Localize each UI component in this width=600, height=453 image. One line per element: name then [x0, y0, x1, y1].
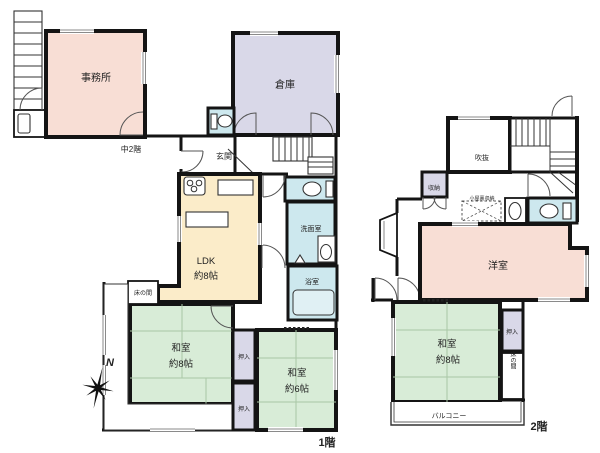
- balcony-label: バルコニー: [432, 412, 467, 420]
- entrance-area: 玄関: [181, 149, 253, 173]
- toilet-1f-tank: [211, 114, 217, 129]
- washroom: 洗面室: [287, 202, 335, 264]
- bathroom: 浴室: [288, 266, 337, 320]
- closet-1f-upper-label: 押入: [238, 353, 250, 361]
- toilet-hall-bowl: [303, 182, 321, 196]
- kitchen-counter: [218, 180, 253, 195]
- stairs-1f-landing: [308, 157, 333, 174]
- toilet-2f: [528, 198, 577, 223]
- toilet-1f-bowl: [218, 115, 232, 127]
- shoe-cabinet: [18, 114, 30, 133]
- balcony: バルコニー: [391, 402, 524, 425]
- bathroom-label: 浴室: [305, 277, 319, 286]
- stairs-2f: [510, 118, 577, 193]
- toilet-1f-hall: [263, 175, 335, 201]
- office-label: 事務所: [81, 71, 111, 84]
- warehouse-label: 倉庫: [275, 78, 295, 91]
- toilet-hall-tank: [326, 181, 333, 197]
- attic-storage-label: 小屋裏収納: [469, 195, 494, 202]
- tatami8-2f-size: 約8帖: [436, 354, 461, 366]
- tatami8-2f-name: 和室: [437, 338, 456, 350]
- stairs-1f: [273, 137, 333, 174]
- stairs-top-door-arc: [552, 96, 572, 116]
- floor2-plan: 吹抜 収納 小屋裏収納: [371, 96, 590, 433]
- toilet-2f-tank: [563, 203, 571, 219]
- void-room: [448, 118, 510, 172]
- western-room-label: 洋室: [488, 259, 508, 272]
- storage-double-door-arcs: [423, 197, 446, 209]
- washroom-label: 洗面室: [301, 224, 322, 233]
- stairs-2f-door-arc: [528, 174, 550, 196]
- tokonoma-2f-label: 床の間: [509, 350, 516, 370]
- floor1-label: 1階: [318, 435, 335, 449]
- attic-storage: 小屋裏収納: [462, 195, 501, 221]
- closet-1f-lower-label: 押入: [238, 405, 250, 413]
- stairs-upper-run: [14, 11, 42, 110]
- storage-2f-label: 収納: [428, 184, 440, 192]
- ldk-counter-table: [186, 212, 228, 227]
- closet-2f-label: 押入: [506, 328, 518, 336]
- bathtub: [293, 290, 334, 315]
- toilet-1f: [208, 108, 234, 135]
- stairs-2f-area: [510, 118, 577, 172]
- tatami6-size: 約6帖: [285, 383, 310, 395]
- ldk-size-label: 約8帖: [194, 270, 219, 282]
- floor-plan-svg: 事務所 中2階 倉庫 玄関: [0, 0, 600, 453]
- ldk-name-label: LDK: [197, 256, 216, 267]
- floor1-plan: 事務所 中2階 倉庫 玄関: [14, 11, 340, 449]
- entrance-door-arc: [181, 151, 203, 172]
- mezzanine-label: 中2階: [121, 144, 141, 154]
- office-room: [46, 31, 145, 137]
- entrance-label: 玄関: [216, 151, 232, 161]
- toilet-2f-bowl: [540, 204, 558, 218]
- floor-plan-image: 事務所 中2階 倉庫 玄関: [0, 0, 600, 453]
- floor2-label: 2階: [530, 419, 547, 433]
- tatami8-1f-name: 和室: [171, 342, 190, 354]
- kitchen: [184, 177, 253, 195]
- mezzanine-stairs: [14, 11, 45, 137]
- bay-window: [380, 213, 397, 257]
- washbasin-2f: [509, 203, 521, 220]
- tatami8-1f-size: 約8帖: [169, 358, 194, 370]
- void-label: 吹抜: [475, 153, 489, 162]
- tokonoma-1f-label: 床の間: [134, 289, 152, 297]
- tatami6-name: 和室: [287, 367, 306, 379]
- toilet-hall-door-arc: [263, 175, 285, 197]
- storage-2f: [422, 172, 447, 197]
- hall-door-arc: [262, 245, 285, 268]
- hall-2f-door-arcs: [375, 278, 420, 300]
- north-label: N: [106, 357, 115, 369]
